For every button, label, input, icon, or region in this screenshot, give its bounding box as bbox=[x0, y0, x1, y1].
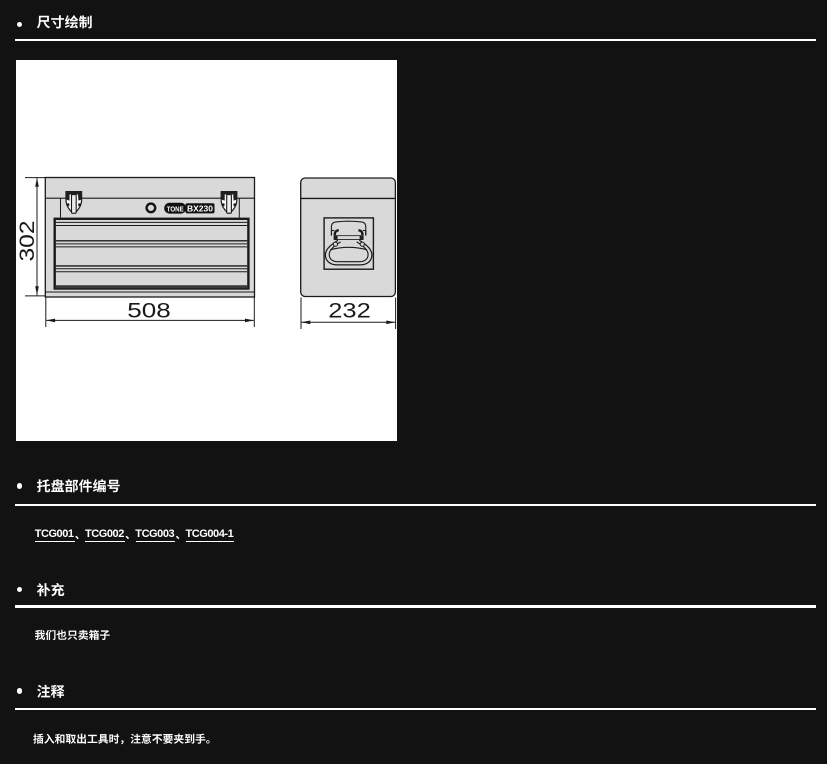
svg-text:232: 232 bbox=[328, 299, 371, 322]
svg-text:302: 302 bbox=[16, 221, 39, 262]
svg-text:BX230: BX230 bbox=[187, 205, 214, 214]
svg-text:TONE: TONE bbox=[166, 205, 183, 214]
svg-text:508: 508 bbox=[127, 300, 171, 323]
